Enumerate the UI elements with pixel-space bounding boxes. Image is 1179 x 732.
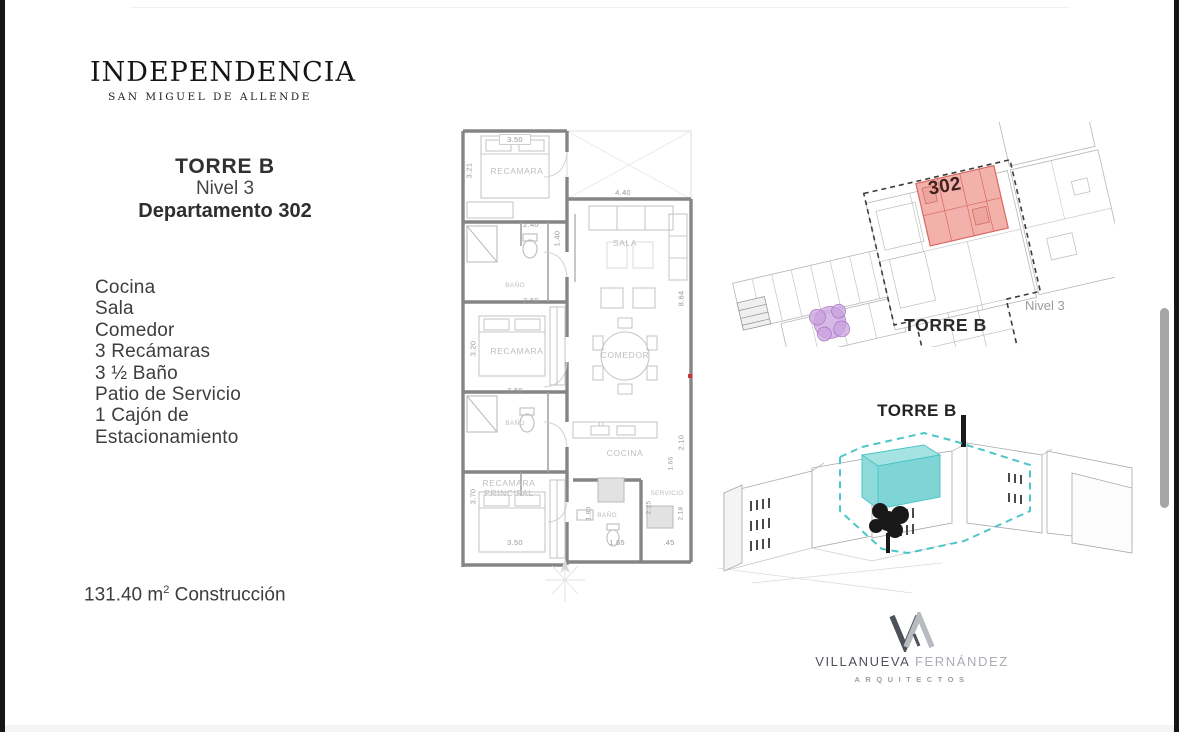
room-label-recamara-ppal-2: PRINCIPAL [477, 488, 541, 498]
firm-logo: VILLANUEVA FERNÁNDEZ ARQUITECTOS [812, 612, 1012, 684]
feature-item: Cocina [95, 277, 335, 298]
axon-tower-label: TORRE B [852, 401, 982, 421]
firm-name-secondary: FERNÁNDEZ [915, 654, 1009, 669]
dim-label: 3.70 [469, 479, 478, 515]
appliances [598, 478, 673, 528]
window-edge-left [0, 0, 5, 732]
red-mark [688, 374, 692, 378]
level-title: Nivel 3 [95, 178, 355, 200]
feature-item: Patio de Servicio [95, 384, 335, 405]
dim-label: 8.64 [677, 281, 686, 317]
dim-label: 3.20 [469, 331, 478, 367]
room-label-cocina: COCINA [597, 448, 653, 458]
construction-area: 131.40 m2 Construcción [84, 584, 286, 606]
dim-label: 4.40 [605, 188, 641, 197]
dim-label: 2.40 [513, 220, 549, 229]
vf-monogram-icon [884, 612, 940, 652]
floor-plan: RECAMARA BAÑO SALA RECAMARA COMEDOR BAÑO… [455, 122, 701, 604]
area-suffix: Construcción [175, 584, 286, 605]
feature-list: Cocina Sala Comedor 3 Recámaras 3 ½ Baño… [95, 277, 335, 448]
room-label-comedor: COMEDOR [599, 350, 651, 360]
dim-label: 2.25 [646, 490, 653, 526]
dim-label: 1.65 [599, 538, 635, 547]
room-label-bano-2: BAÑO [495, 420, 535, 427]
room-label-sala: SALA [599, 238, 651, 248]
dim-label: 1.40 [553, 221, 562, 257]
presentation-page: Independencia San Miguel de Allende TORR… [0, 0, 1179, 732]
dim-label: 2.18 [678, 496, 685, 532]
page-bottom-border [5, 725, 1174, 732]
dim-label: 3.50 [499, 134, 531, 145]
dim-label: 3.50 [497, 538, 533, 547]
feature-item: Comedor [95, 320, 335, 341]
axonometric-view: TORRE B [712, 393, 1137, 598]
unit-title: Departamento 302 [95, 200, 355, 222]
vertical-scrollbar-thumb[interactable] [1160, 308, 1169, 508]
room-label-recamara-1: RECAMARA [485, 166, 549, 176]
area-superscript: 2 [163, 584, 169, 596]
axonometric-drawing [712, 393, 1137, 598]
tower-title: TORRE B [95, 155, 355, 178]
partition-walls [521, 222, 548, 496]
axon-highlight-volume [862, 445, 940, 509]
floor-plan-drawing [455, 122, 701, 604]
area-value: 131.40 m [84, 584, 163, 605]
feature-item: Sala [95, 298, 335, 319]
project-logo: Independencia San Miguel de Allende [90, 58, 330, 103]
site-building-outlines [725, 122, 1115, 347]
room-label-recamara-2: RECAMARA [485, 346, 549, 356]
site-hatched-area [737, 297, 771, 331]
feature-item: 3 ½ Baño [95, 363, 335, 384]
feature-item: 3 Recámaras [95, 341, 335, 362]
firm-name-primary: VILLANUEVA [815, 654, 910, 669]
firm-tagline: ARQUITECTOS [812, 675, 1012, 684]
dim-label: 3.50 [497, 386, 533, 395]
feature-item: Estacionamiento [95, 427, 335, 448]
site-key-plan-drawing [725, 122, 1115, 347]
dim-label: 3.21 [465, 153, 474, 189]
site-tower-label: TORRE B [853, 315, 1038, 336]
firm-name: VILLANUEVA FERNÁNDEZ [812, 654, 1012, 669]
dim-label: 2.10 [677, 425, 686, 461]
bath-fixtures [467, 226, 619, 546]
site-level-label: Nivel 3 [1025, 298, 1095, 313]
window-edge-right [1174, 0, 1179, 732]
project-logo-title: Independencia [90, 58, 330, 88]
dim-label: 2.50 [513, 296, 549, 305]
site-key-plan: 302 Nivel 3 TORRE B [725, 122, 1115, 347]
dim-label: .45 [651, 538, 687, 547]
project-logo-subtitle: San Miguel de Allende [90, 91, 330, 103]
dim-label: 1.80 [586, 496, 593, 532]
room-label-bano-1: BAÑO [495, 282, 535, 289]
dim-label: 1.66 [668, 446, 675, 482]
unit-header: TORRE B Nivel 3 Departamento 302 [95, 155, 355, 222]
page-top-border [130, 7, 1070, 8]
feature-item: 1 Cajón de [95, 405, 335, 426]
room-label-recamara-ppal-1: RECAMARA [477, 478, 541, 488]
